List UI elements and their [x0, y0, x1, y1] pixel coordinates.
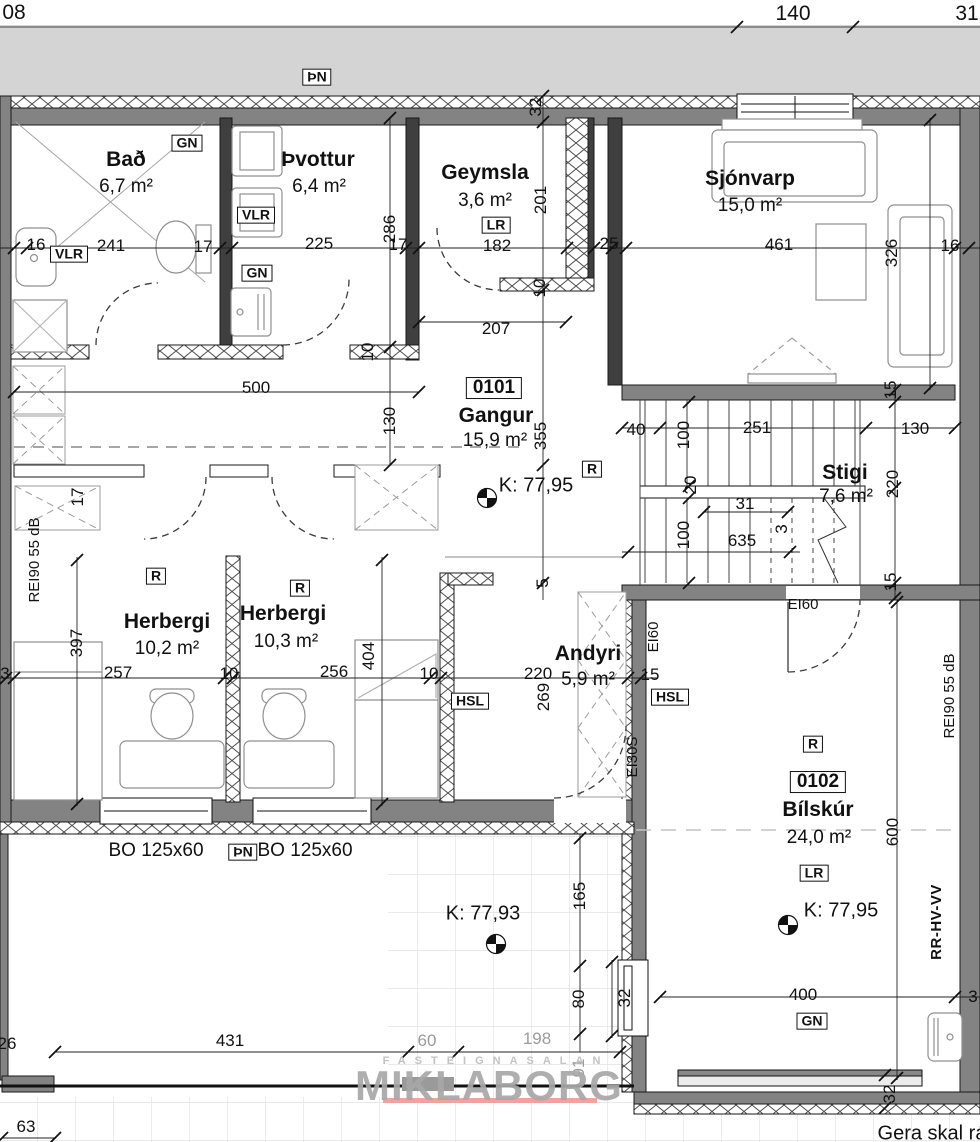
dim-3-left: 3	[0, 665, 9, 683]
note-ei60-vert: EI60	[646, 622, 662, 653]
dim-600: 600	[884, 818, 902, 846]
dim-241: 241	[97, 237, 125, 255]
dim-80: 80	[570, 990, 588, 1009]
area-stigi: 7,6 m²	[819, 487, 873, 507]
area-herbergi2: 10,3 m²	[254, 632, 318, 652]
dim-17-c: 17	[69, 488, 87, 507]
dim-15-andyri: 15	[641, 666, 660, 684]
dim-5: 5	[534, 578, 552, 587]
dim-10-geymsla: 10	[531, 279, 549, 298]
dim-15-stigi-top: 15	[882, 381, 900, 400]
room-herbergi2: Herbergi	[240, 603, 326, 625]
tag-vlr-bad: VLR	[50, 246, 88, 263]
dim-326: 326	[883, 239, 901, 267]
room-stigi: Stigi	[822, 462, 868, 484]
room-herbergi1: Herbergi	[124, 611, 210, 633]
dim-100-a: 100	[675, 421, 693, 449]
room-geymsla: Geymsla	[441, 162, 529, 184]
room-andyri: Andyri	[555, 643, 622, 665]
dim-635: 635	[728, 532, 756, 550]
area-gangur: 15,9 m²	[463, 431, 527, 451]
dim-08: 08	[2, 2, 25, 24]
dim-31-stigi: 31	[736, 495, 755, 513]
floor-plan: 0814031ÞN32Bað6,7 m²GNÞvottur6,4 m²VLRGN…	[0, 0, 980, 1142]
tag-lr-geymsla: LR	[482, 217, 511, 234]
dim-257: 257	[104, 664, 132, 682]
dim-32-top: 32	[527, 98, 545, 117]
room-bad: Bað	[106, 149, 146, 171]
dim-256: 256	[320, 663, 348, 681]
note-ei30s: EI30S	[625, 737, 641, 778]
dim-251: 251	[743, 419, 771, 437]
tag-gn-bilskur: GN	[797, 1013, 828, 1030]
tag-hsl-right: HSL	[651, 689, 689, 706]
dim-182: 182	[483, 237, 511, 255]
dim-32-garwin: 32	[616, 989, 634, 1008]
dim-225: 225	[305, 235, 333, 253]
dim-3-stigi: 3	[773, 524, 791, 533]
tag-r-herbergi1: R	[146, 568, 166, 585]
tag-r-bilskur: R	[803, 736, 823, 753]
level-terrace: K: 77,93	[446, 904, 521, 925]
dim-207: 207	[482, 320, 510, 338]
window-bo-1: BO 125x60	[108, 841, 203, 861]
dim-431: 431	[216, 1032, 244, 1050]
dim-220-andyri: 220	[524, 665, 552, 683]
tag-thn-top: ÞN	[302, 69, 331, 86]
room-thvottur: Þvottur	[281, 149, 355, 171]
room-bilskur: Bílskúr	[782, 799, 853, 821]
dim-220-stigi: 220	[884, 470, 902, 498]
roomnum-0102: 0102	[790, 771, 846, 793]
dim-461: 461	[765, 236, 793, 254]
note-ei60-top: EI60	[788, 597, 819, 613]
note-rr-hv-vv: RR-HV-VV	[929, 884, 945, 960]
dim-3-right: 3	[968, 988, 977, 1006]
tag-hsl-left: HSL	[451, 693, 489, 710]
dim-63: 63	[17, 1118, 36, 1136]
dim-25: 25	[600, 235, 619, 253]
labels-layer: 0814031ÞN32Bað6,7 m²GNÞvottur6,4 m²VLRGN…	[0, 0, 980, 1142]
dim-201: 201	[532, 186, 550, 214]
room-sjonvarp: Sjónvarp	[705, 168, 795, 190]
dim-15-stigi-bot: 15	[882, 573, 900, 592]
dim-130-right: 130	[901, 420, 929, 438]
area-geymsla: 3,6 m²	[458, 191, 512, 211]
note-gera: Gera skal rá	[878, 1124, 980, 1142]
area-thvottur: 6,4 m²	[292, 177, 346, 197]
dim-198: 198	[523, 1030, 551, 1048]
tag-thn-bottom: ÞN	[228, 844, 257, 861]
dim-140: 140	[775, 3, 810, 25]
tag-lr-bilskur: LR	[800, 865, 829, 882]
dim-100-b: 100	[675, 521, 693, 549]
dim-500: 500	[242, 379, 270, 397]
dim-10-c: 10	[420, 665, 439, 683]
dim-130-left: 130	[381, 407, 399, 435]
dim-16-right: 16	[941, 237, 960, 255]
tag-gn-bad: GN	[172, 135, 203, 152]
dim-10-b: 10	[220, 665, 239, 683]
watermark-large: MIKLABORG	[355, 1064, 623, 1108]
note-rei90-right: REI90 55 dB	[942, 653, 958, 738]
dim-31-top: 31	[955, 3, 978, 25]
dim-16-left: 16	[27, 236, 46, 254]
dim-17-a: 17	[194, 238, 213, 256]
dim-60: 60	[418, 1032, 437, 1050]
area-andyri: 5,9 m²	[561, 670, 615, 690]
roomnum-0101: 0101	[466, 377, 522, 399]
dim-404: 404	[360, 642, 378, 670]
tag-r-herbergi2: R	[290, 580, 310, 597]
dim-17-b: 17	[389, 236, 408, 254]
window-bo-2: BO 125x60	[257, 841, 352, 861]
area-bilskur: 24,0 m²	[787, 828, 851, 848]
tag-vlr-thvottur: VLR	[237, 207, 275, 224]
tag-gn-thvottur: GN	[242, 265, 273, 282]
dim-355: 355	[532, 422, 550, 450]
dim-32-gardoor: 32	[881, 1085, 899, 1104]
area-sjonvarp: 15,0 m²	[718, 196, 782, 216]
tag-r-gangur: R	[582, 461, 602, 478]
dim-26: 26	[0, 1035, 16, 1053]
dim-10-wall: 10	[359, 343, 377, 362]
dim-400: 400	[789, 986, 817, 1004]
level-bilskur: K: 77,95	[804, 901, 879, 922]
area-bad: 6,7 m²	[99, 177, 153, 197]
level-gangur: K: 77,95	[499, 476, 574, 497]
dim-269: 269	[535, 683, 553, 711]
area-herbergi1: 10,2 m²	[135, 639, 199, 659]
dim-40: 40	[627, 421, 646, 439]
dim-165: 165	[571, 882, 589, 910]
dim-20: 20	[682, 476, 700, 495]
dim-397: 397	[68, 629, 86, 657]
room-gangur: Gangur	[459, 405, 534, 427]
note-rei90-left: REI90 55 dB	[27, 517, 43, 602]
